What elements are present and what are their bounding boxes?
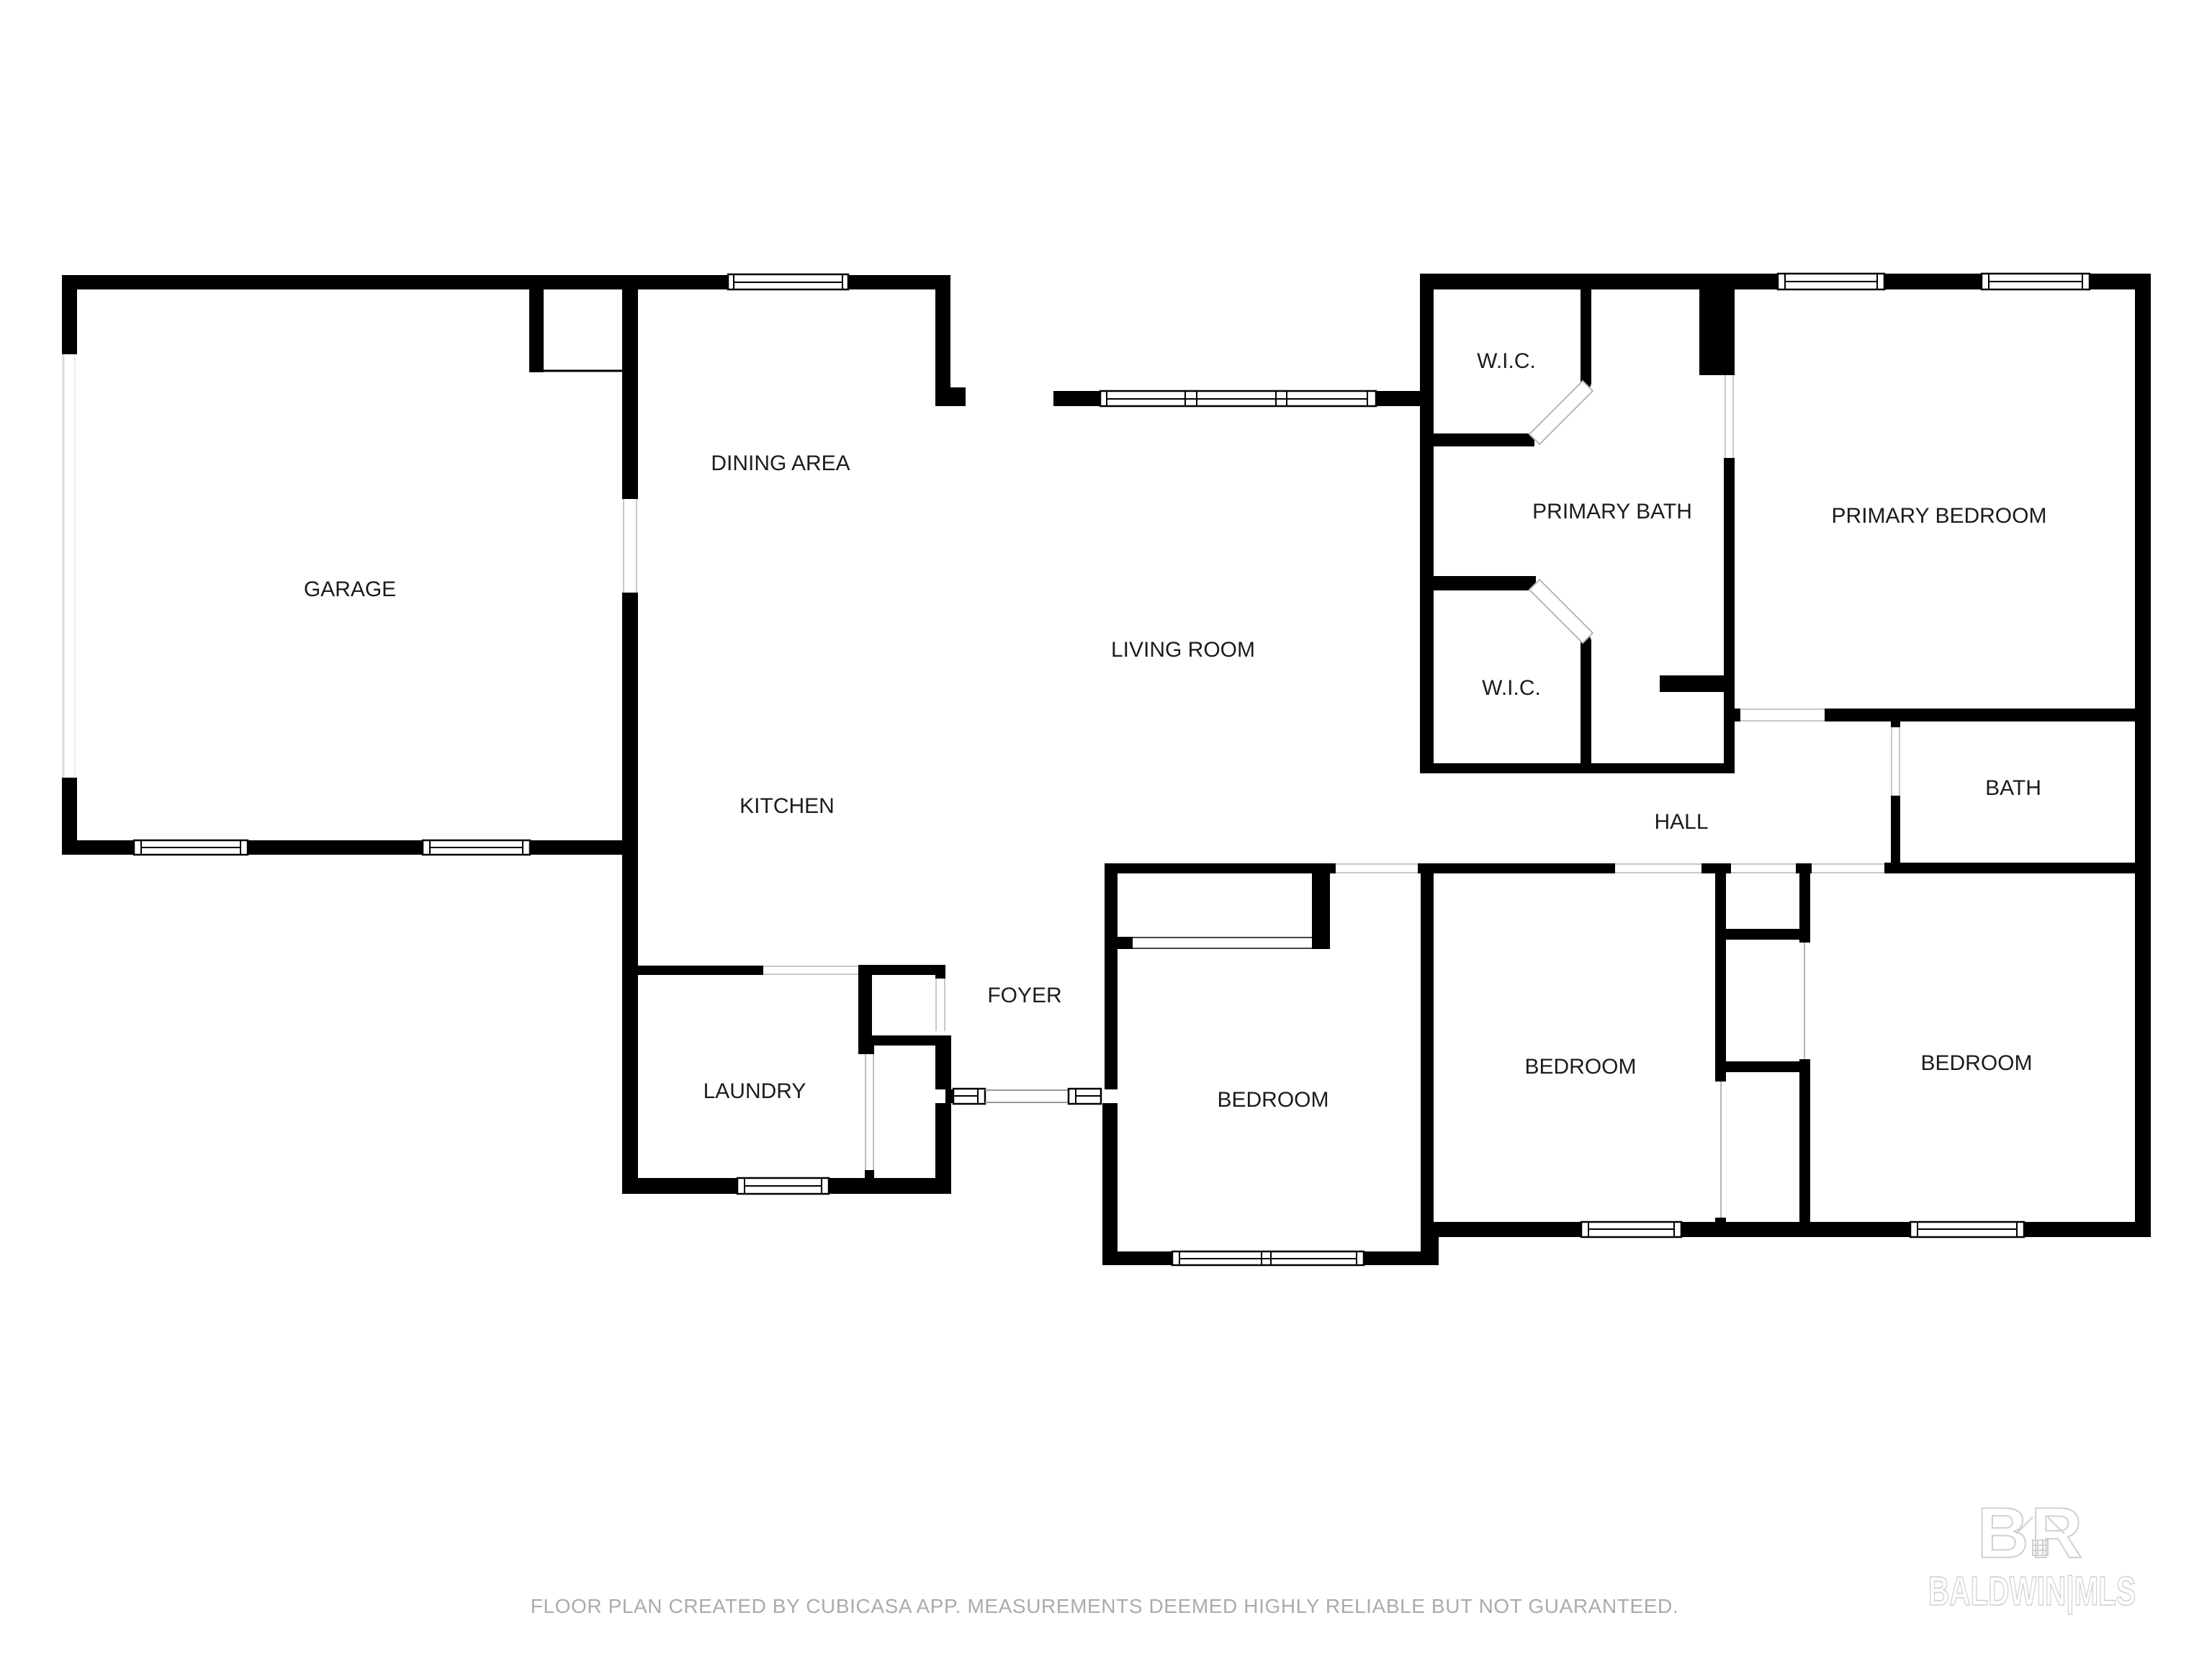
svg-text:PRIMARY BEDROOM: PRIMARY BEDROOM [1832,504,2047,528]
svg-text:DINING AREA: DINING AREA [711,451,850,475]
svg-text:BEDROOM: BEDROOM [1920,1051,2032,1075]
svg-text:GARAGE: GARAGE [304,577,396,601]
svg-text:FOYER: FOYER [987,984,1061,1007]
svg-text:LAUNDRY: LAUNDRY [703,1079,806,1103]
svg-text:BATH: BATH [1985,776,2041,800]
svg-text:PRIMARY BATH: PRIMARY BATH [1532,500,1692,523]
svg-text:BEDROOM: BEDROOM [1217,1088,1328,1112]
svg-text:BEDROOM: BEDROOM [1524,1055,1636,1079]
svg-text:FLOOR PLAN CREATED BY CUBICASA: FLOOR PLAN CREATED BY CUBICASA APP. MEAS… [531,1595,1678,1617]
svg-text:BR: BR [1977,1493,2085,1573]
svg-text:BALDWIN|MLS: BALDWIN|MLS [1928,1568,2136,1614]
svg-text:KITCHEN: KITCHEN [739,794,835,818]
svg-text:LIVING ROOM: LIVING ROOM [1111,638,1255,662]
svg-text:W.I.C.: W.I.C. [1477,349,1536,373]
svg-text:HALL: HALL [1654,810,1708,834]
svg-text:W.I.C.: W.I.C. [1482,676,1541,700]
